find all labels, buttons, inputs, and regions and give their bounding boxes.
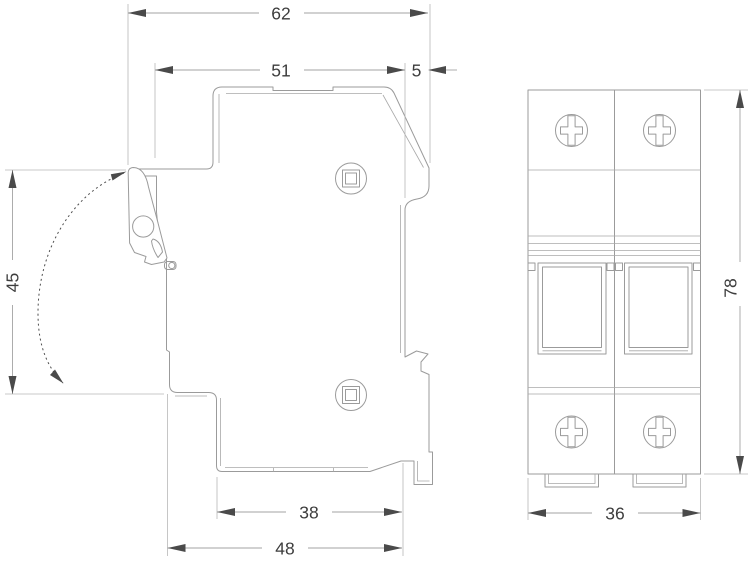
foot-tab-right — [633, 474, 686, 487]
dim-36-label: 36 — [605, 504, 624, 524]
arrowhead-left — [155, 66, 173, 74]
foot-tab-left — [545, 474, 599, 487]
dimension-5: 5 — [412, 61, 457, 81]
arrowhead-left — [168, 544, 186, 552]
dim-45-label: 45 — [3, 273, 23, 292]
drawing-canvas: 62 51 5 45 38 48 — [0, 0, 750, 561]
arrowhead-left — [128, 9, 146, 17]
side-view — [128, 87, 432, 485]
dim-5-label: 5 — [412, 61, 422, 81]
arrowhead-up — [736, 90, 744, 108]
dimension-36: 36 — [528, 478, 701, 524]
swing-arc-arrow-top — [111, 172, 127, 181]
arrowhead-right — [387, 66, 405, 74]
arrowhead-up — [9, 170, 17, 188]
front-view — [528, 90, 701, 487]
side-body-outline — [138, 87, 433, 485]
dimension-78: 78 — [704, 90, 748, 474]
swing-arc — [38, 172, 127, 384]
dim-38-label: 38 — [299, 503, 318, 523]
diagram-svg: 62 51 5 45 38 48 — [0, 0, 750, 561]
arrowhead-left — [217, 508, 235, 516]
foot-inner — [637, 474, 683, 484]
dim-48-label: 48 — [275, 539, 294, 559]
swing-arc-arrow-bottom — [50, 370, 64, 384]
arrowhead-right — [384, 544, 402, 552]
foot-outer — [545, 474, 599, 487]
arrowhead-left — [528, 509, 546, 517]
foot-inner — [549, 474, 596, 484]
dimension-38: 38 — [217, 463, 403, 556]
arrowhead-right — [410, 9, 428, 17]
dim-78-label: 78 — [721, 278, 741, 297]
arrowhead-down — [9, 376, 17, 394]
swing-arc-path — [38, 173, 124, 383]
arrowhead-outside — [428, 66, 446, 74]
arrowhead-right — [384, 508, 402, 516]
arrowhead-right — [683, 509, 701, 517]
foot-outer — [633, 474, 686, 487]
dim-62-label: 62 — [271, 4, 290, 24]
dim-51-label: 51 — [271, 61, 290, 81]
arrowhead-down — [736, 456, 744, 474]
